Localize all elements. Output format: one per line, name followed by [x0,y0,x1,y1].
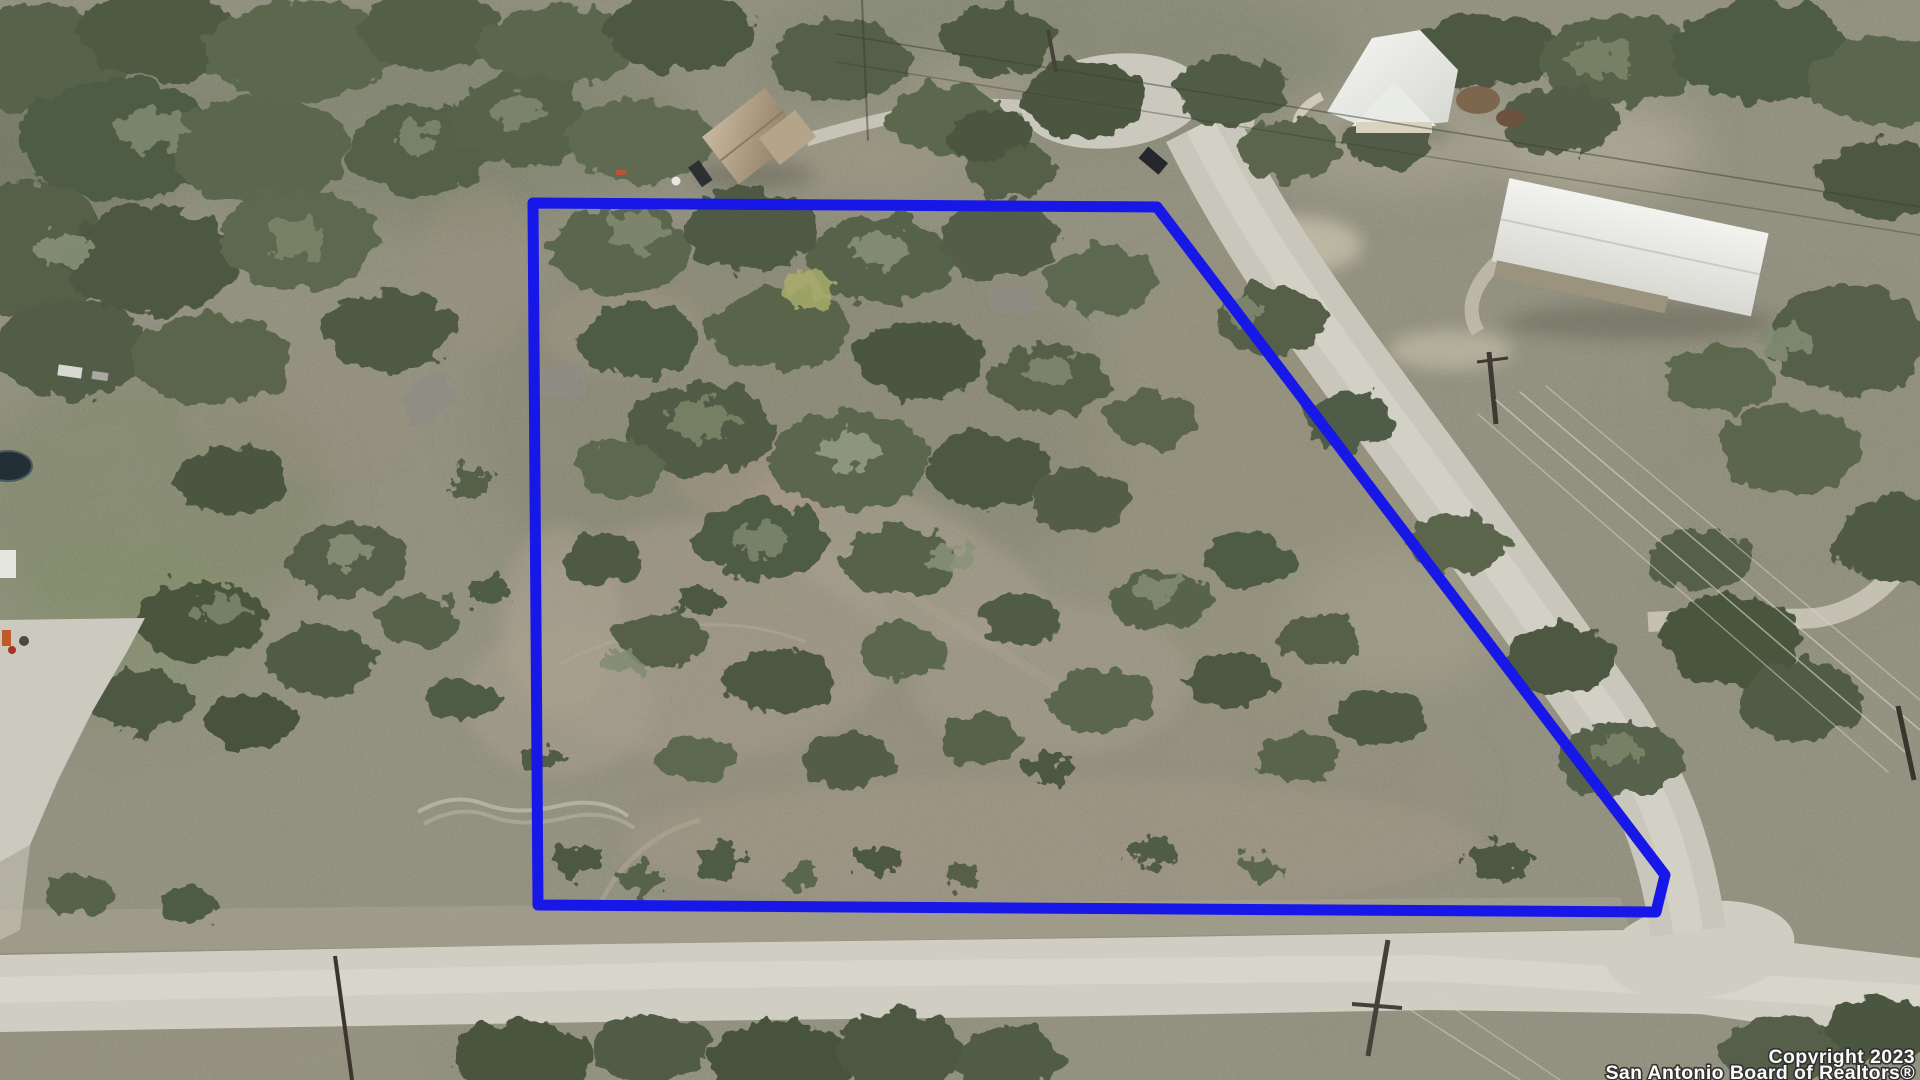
aerial-photo: Copyright 2023 San Antonio Board of Real… [0,0,1920,1080]
watermark-line2: San Antonio Board of Realtors® [1606,1062,1916,1080]
aerial-photo-canvas: Copyright 2023 San Antonio Board of Real… [0,0,1920,1080]
red-equipment [616,170,626,175]
satellite-dish [672,177,681,186]
yellow-green-tree [784,272,836,308]
orange-equipment [2,630,11,646]
white-shed [0,550,16,578]
